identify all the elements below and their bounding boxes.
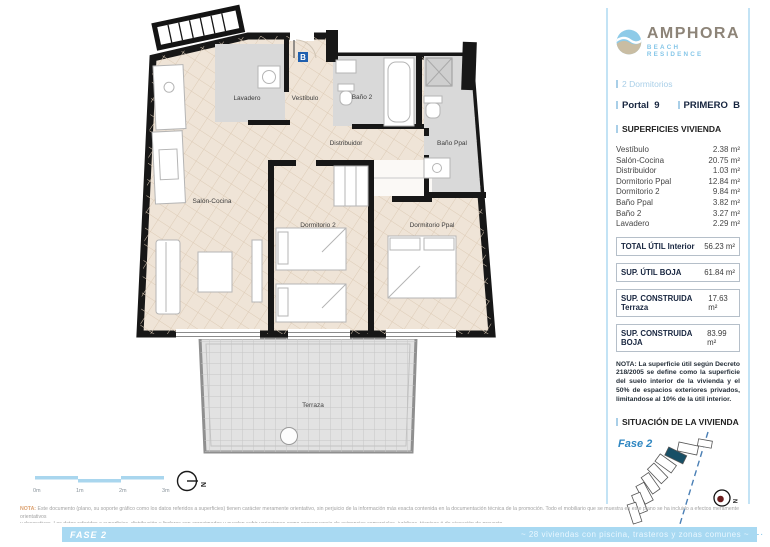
surfaces-title: SUPERFICIES VIVIENDA xyxy=(616,124,740,134)
section-tick xyxy=(678,101,680,109)
label-bano2: Baño 2 xyxy=(352,94,373,101)
scale-1m: 1m xyxy=(76,488,84,494)
table-row: Salón-Cocina20.75 m² xyxy=(616,156,740,167)
legal-disclaimer: NOTA: Este documento (plano, su soporte … xyxy=(20,506,752,523)
map-north-label: N xyxy=(731,499,737,503)
brand-logo: AMPHORA BEACH RESIDENCE xyxy=(616,20,740,64)
north-label: N xyxy=(199,482,206,487)
label-salon: Salón-Cocina xyxy=(192,198,231,205)
disclaimer-prefix: NOTA: xyxy=(20,506,36,512)
situacion-title: SITUACIÓN DE LA VIVIENDA xyxy=(616,417,740,427)
north-arrow-icon: N xyxy=(178,472,207,491)
fase-bar: FASE 2 ~ 28 viviendas con piscina, trast… xyxy=(62,527,757,542)
terrace-table xyxy=(281,428,298,445)
nota-text: NOTA: La superficie útil según Decreto 2… xyxy=(616,361,740,405)
table-row: Lavadero2.29 m² xyxy=(616,219,740,230)
scale-3m: 3m xyxy=(162,488,170,494)
table-row: Dormitorio Ppal12.84 m² xyxy=(616,177,740,188)
scale-2m: 2m xyxy=(119,488,127,494)
brand-tagline: BEACH RESIDENCE xyxy=(647,44,740,58)
sup-construida-terraza: SUP. CONSTRUIDA Terraza17.63 m² xyxy=(616,289,740,317)
scale-bar: 0m 1m 2m 3m xyxy=(33,476,170,494)
map-north-icon: N xyxy=(714,490,737,506)
table-row: Vestíbulo2.38 m² xyxy=(616,145,740,156)
label-banoppal: Baño Ppal xyxy=(437,140,468,147)
portal: Portal 9 xyxy=(616,100,660,111)
section-tick xyxy=(616,125,618,133)
surfaces-table: Vestíbulo2.38 m² Salón-Cocina20.75 m² Di… xyxy=(616,145,740,230)
fase-bar-tagline: ~ 28 viviendas con piscina, trasteros y … xyxy=(521,530,749,539)
label-lavadero: Lavadero xyxy=(233,95,260,102)
brand-name: AMPHORA xyxy=(647,26,740,42)
label-dormitorioppal: Dormitorio Ppal xyxy=(410,222,455,229)
floor-unit: PRIMERO B xyxy=(678,100,741,111)
label-dormitorio2: Dormitorio 2 xyxy=(300,222,336,229)
windows xyxy=(176,329,456,339)
label-terraza: Terraza xyxy=(302,402,324,409)
info-panel: AMPHORA BEACH RESIDENCE 2 Dormitorios Po… xyxy=(606,8,750,504)
disclaimer-line1: Este documento (plano, su soporte gráfic… xyxy=(20,506,739,520)
floor-plan: B Lavadero Ves xyxy=(0,0,605,505)
entrance-marker: B xyxy=(298,52,308,62)
fase-bar-title: FASE 2 xyxy=(70,530,107,540)
scale-0m: 0m xyxy=(33,488,41,494)
section-tick xyxy=(616,418,618,426)
table-row: Dormitorio 29.84 m² xyxy=(616,187,740,198)
fase-label: Fase 2 xyxy=(618,438,652,450)
sup-util-boja: SUP. ÚTIL BOJA61.84 m² xyxy=(616,263,740,282)
disclaimer-line2: y decorativos. Los datos referidos a sup… xyxy=(20,521,752,523)
label-vestibulo: Vestíbulo xyxy=(292,95,319,102)
entrance-marker-label: B xyxy=(300,53,306,62)
sup-construida-boja: SUP. CONSTRUIDA BOJA83.99 m² xyxy=(616,324,740,352)
table-row: Baño Ppal3.82 m² xyxy=(616,198,740,209)
table-row: Baño 23.27 m² xyxy=(616,209,740,220)
terrace xyxy=(200,338,416,452)
section-tick xyxy=(616,101,618,109)
section-tick xyxy=(616,80,618,88)
table-row: Distribuidor1.03 m² xyxy=(616,166,740,177)
unit-type: 2 Dormitorios xyxy=(616,79,740,89)
floor-plan-svg: B Lavadero Ves xyxy=(0,0,605,505)
unit-identity: Portal 9 PRIMERO B xyxy=(616,100,740,111)
label-distribuidor: Distribuidor xyxy=(330,140,364,147)
brand-logo-icon xyxy=(616,20,642,64)
total-util-interior: TOTAL ÚTIL Interior56.23 m² xyxy=(616,237,740,256)
